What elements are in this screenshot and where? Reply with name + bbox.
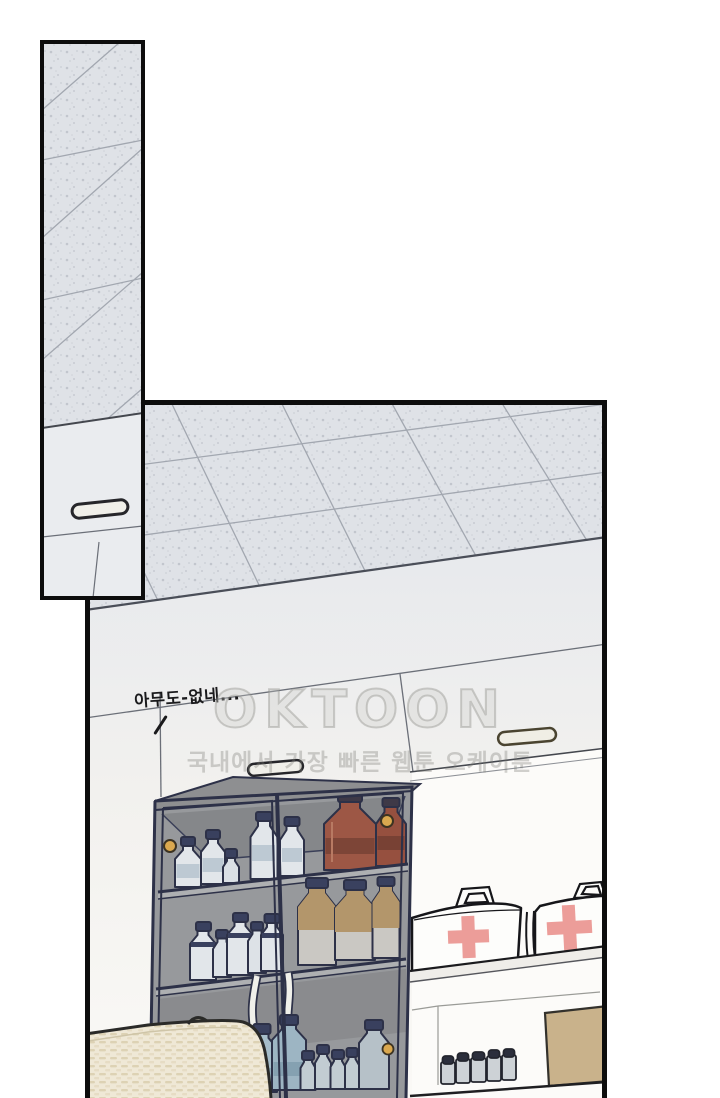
small-jar — [301, 1051, 316, 1090]
small-jar — [315, 1045, 331, 1089]
gold-knob — [383, 1044, 394, 1055]
webtoon-page: 아무도-없네... OKTOON 국내에서 가장 빠른 웹툰 오케이툰 — [0, 0, 720, 1098]
wicker-basket — [85, 1018, 271, 1098]
white-bottle — [223, 849, 239, 883]
door-knob — [164, 840, 176, 852]
small-jar — [345, 1048, 359, 1089]
door-knob — [381, 815, 393, 827]
cardboard-box — [545, 1006, 610, 1086]
open-shelf-unit — [410, 748, 610, 1098]
ceiling-strip-panel — [42, 42, 143, 598]
comic-artwork — [0, 0, 720, 1098]
small-jar — [331, 1050, 346, 1089]
